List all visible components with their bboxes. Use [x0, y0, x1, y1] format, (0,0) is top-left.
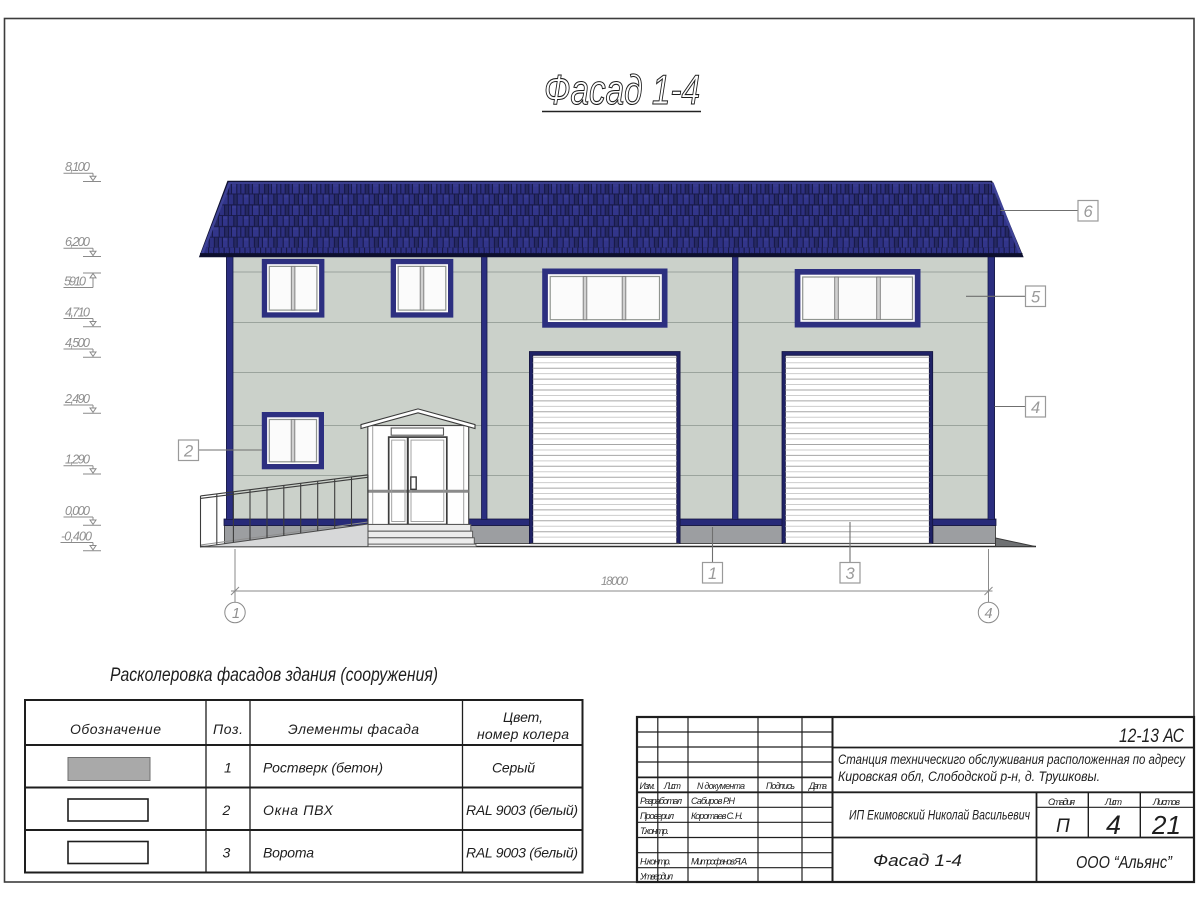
- svg-text:ООО “Альянс”: ООО “Альянс”: [1076, 852, 1173, 872]
- svg-text:1: 1: [708, 565, 717, 583]
- svg-text:Разработал: Разработал: [640, 796, 682, 806]
- svg-text:4,500: 4,500: [65, 336, 90, 350]
- svg-text:5: 5: [1031, 289, 1041, 307]
- svg-text:Лист: Лист: [1104, 797, 1122, 807]
- svg-text:1,290: 1,290: [65, 453, 90, 467]
- svg-text:Поз.: Поз.: [213, 721, 243, 737]
- svg-text:18000: 18000: [601, 576, 629, 588]
- svg-text:Утвердил: Утвердил: [639, 872, 673, 882]
- svg-text:Ростверк (бетон): Ростверк (бетон): [263, 760, 383, 776]
- svg-text:2: 2: [222, 802, 231, 818]
- svg-text:Обозначение: Обозначение: [70, 721, 161, 737]
- svg-text:1: 1: [232, 606, 240, 622]
- svg-text:Подпись: Подпись: [766, 781, 795, 791]
- svg-text:Дата: Дата: [808, 781, 827, 791]
- svg-text:RAL 9003 (белый): RAL 9003 (белый): [466, 802, 578, 818]
- svg-text:Элементы фасада: Элементы фасада: [288, 721, 419, 737]
- svg-text:N документа: N документа: [697, 781, 745, 791]
- svg-text:Митрофанов Я. А.: Митрофанов Я. А.: [691, 857, 748, 867]
- svg-text:6,200: 6,200: [65, 235, 90, 249]
- svg-text:Сабиров Р.Н: Сабиров Р.Н: [691, 796, 735, 806]
- svg-text:-0,400: -0,400: [61, 529, 92, 543]
- svg-text:2,490: 2,490: [64, 392, 90, 406]
- svg-text:12-13 АС: 12-13 АС: [1119, 726, 1184, 747]
- svg-text:8,100: 8,100: [65, 160, 90, 174]
- svg-text:Проверил: Проверил: [640, 811, 674, 821]
- svg-text:Лист: Лист: [663, 781, 681, 791]
- svg-text:Расколеровка фасадов здания (с: Расколеровка фасадов здания (сооружения): [110, 664, 438, 686]
- svg-text:Цвет,: Цвет,: [503, 709, 543, 725]
- svg-text:4: 4: [1031, 399, 1040, 417]
- svg-text:3: 3: [223, 845, 231, 861]
- svg-text:Изм.: Изм.: [640, 781, 656, 791]
- svg-text:4,710: 4,710: [65, 305, 90, 319]
- svg-text:4: 4: [1106, 810, 1121, 840]
- svg-text:Серый: Серый: [492, 760, 535, 776]
- svg-text:6: 6: [1084, 203, 1094, 221]
- svg-text:Окна ПВХ: Окна ПВХ: [263, 802, 334, 818]
- svg-text:Фасад 1-4: Фасад 1-4: [544, 66, 700, 113]
- svg-text:21: 21: [1151, 810, 1181, 840]
- svg-text:Фасад 1-4: Фасад 1-4: [873, 852, 962, 870]
- svg-text:Т.контр.: Т.контр.: [640, 826, 669, 836]
- svg-text:5910: 5910: [64, 275, 86, 289]
- svg-text:RAL 9003 (белый): RAL 9003 (белый): [466, 845, 578, 861]
- svg-text:Коротаев С. Н.: Коротаев С. Н.: [691, 811, 743, 821]
- svg-text:Кировская обл, Слободской р-н,: Кировская обл, Слободской р-н, д. Трушко…: [838, 769, 1100, 784]
- svg-text:0,000: 0,000: [65, 504, 90, 518]
- svg-text:1: 1: [224, 760, 232, 776]
- svg-text:Н.контр.: Н.контр.: [640, 857, 671, 867]
- svg-text:Стадия: Стадия: [1048, 797, 1075, 807]
- svg-text:П: П: [1056, 816, 1070, 837]
- svg-text:Станция техническиго обслужива: Станция техническиго обслуживания распол…: [838, 752, 1186, 767]
- svg-text:номер колера: номер колера: [477, 726, 569, 742]
- svg-text:ИП Екимовский Николай Васильев: ИП Екимовский Николай Васильевич: [849, 807, 1030, 823]
- svg-text:Ворота: Ворота: [263, 845, 314, 861]
- svg-text:3: 3: [846, 565, 856, 583]
- svg-text:Листов: Листов: [1152, 797, 1180, 807]
- svg-text:2: 2: [183, 443, 193, 461]
- svg-text:4: 4: [985, 606, 993, 622]
